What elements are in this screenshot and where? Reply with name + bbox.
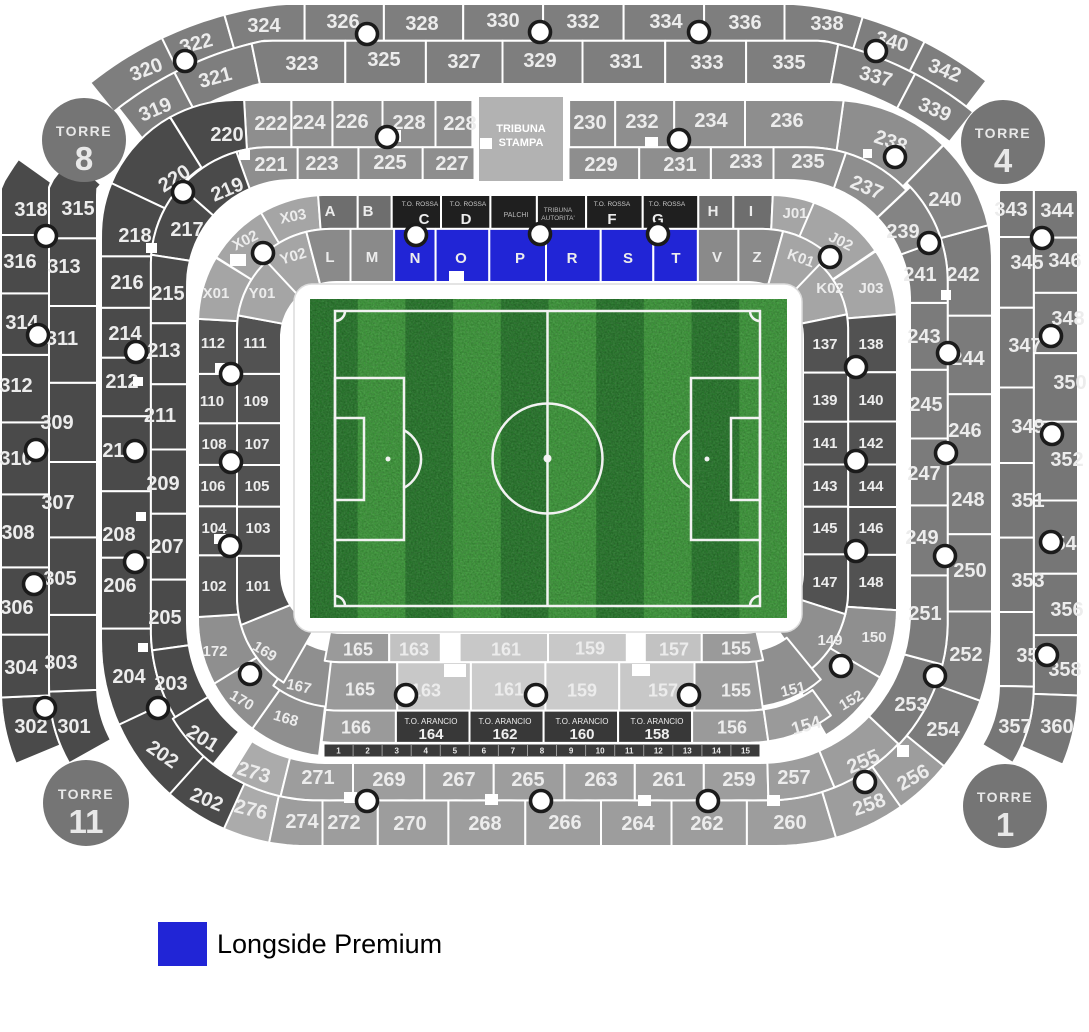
svg-text:X01: X01 (203, 285, 230, 302)
svg-text:239: 239 (886, 221, 919, 243)
svg-text:326: 326 (326, 11, 359, 33)
svg-text:166: 166 (341, 717, 371, 737)
svg-text:211: 211 (144, 405, 176, 427)
svg-text:148: 148 (858, 574, 883, 591)
svg-text:STAMPA: STAMPA (499, 137, 544, 149)
svg-text:8: 8 (540, 747, 545, 756)
svg-text:149: 149 (817, 632, 842, 649)
svg-text:331: 331 (609, 51, 642, 73)
svg-text:234: 234 (694, 110, 728, 132)
svg-text:215: 215 (151, 283, 184, 305)
svg-text:265: 265 (511, 769, 544, 791)
svg-text:163: 163 (399, 639, 429, 659)
svg-text:1: 1 (996, 806, 1014, 843)
svg-text:161: 161 (494, 679, 524, 699)
svg-text:164: 164 (418, 726, 444, 743)
svg-text:227: 227 (435, 153, 468, 175)
svg-text:5: 5 (453, 747, 458, 756)
svg-text:222: 222 (254, 113, 287, 135)
svg-text:142: 142 (858, 435, 883, 452)
svg-text:I: I (749, 203, 753, 220)
svg-text:272: 272 (327, 812, 360, 834)
svg-text:264: 264 (621, 813, 655, 835)
svg-text:11: 11 (69, 803, 104, 840)
svg-text:316: 316 (3, 251, 36, 273)
svg-text:Z: Z (752, 249, 761, 266)
svg-text:109: 109 (243, 393, 268, 410)
svg-text:101: 101 (245, 578, 270, 595)
svg-text:TORRE: TORRE (58, 786, 114, 802)
svg-text:307: 307 (41, 492, 74, 514)
svg-text:156: 156 (717, 717, 747, 737)
svg-text:11: 11 (625, 747, 634, 756)
svg-text:AUTORITA': AUTORITA' (541, 215, 575, 222)
svg-text:108: 108 (201, 436, 226, 453)
svg-text:160: 160 (569, 726, 594, 743)
svg-text:T: T (671, 250, 680, 267)
svg-text:349: 349 (1011, 416, 1044, 438)
svg-text:H: H (708, 203, 719, 220)
svg-text:311: 311 (46, 328, 78, 350)
svg-text:220: 220 (210, 124, 243, 146)
svg-text:203: 203 (154, 673, 187, 695)
svg-text:325: 325 (367, 49, 400, 71)
svg-text:250: 250 (953, 560, 986, 582)
svg-text:143: 143 (812, 478, 837, 495)
svg-text:231: 231 (663, 154, 696, 176)
svg-text:245: 245 (909, 394, 942, 416)
svg-text:K02: K02 (816, 280, 844, 297)
svg-text:330: 330 (486, 10, 519, 32)
svg-text:2: 2 (365, 747, 370, 756)
svg-text:158: 158 (644, 726, 669, 743)
svg-text:J01: J01 (782, 205, 807, 222)
svg-text:PALCHI: PALCHI (504, 212, 529, 219)
svg-text:267: 267 (442, 769, 475, 791)
svg-text:323: 323 (285, 53, 318, 75)
svg-text:305: 305 (43, 568, 76, 590)
svg-text:247: 247 (907, 463, 940, 485)
svg-text:246: 246 (948, 420, 981, 442)
svg-text:TRIBUNA: TRIBUNA (496, 123, 546, 135)
svg-text:335: 335 (772, 52, 805, 74)
svg-text:357: 357 (998, 716, 1031, 738)
svg-text:T.O. ROSSA: T.O. ROSSA (594, 201, 631, 208)
svg-text:223: 223 (305, 153, 338, 175)
svg-text:140: 140 (858, 392, 883, 409)
svg-text:306: 306 (0, 597, 33, 619)
svg-text:318: 318 (14, 199, 47, 221)
svg-text:261: 261 (652, 769, 685, 791)
svg-text:217: 217 (170, 219, 203, 241)
svg-text:221: 221 (254, 154, 287, 176)
svg-text:TORRE: TORRE (56, 123, 112, 139)
svg-text:360: 360 (1040, 716, 1073, 738)
svg-text:105: 105 (244, 478, 269, 495)
svg-text:T.O. ROSSA: T.O. ROSSA (649, 201, 686, 208)
svg-text:233: 233 (729, 151, 762, 173)
svg-text:L: L (325, 249, 334, 266)
svg-text:254: 254 (926, 719, 960, 741)
svg-text:155: 155 (721, 680, 751, 700)
svg-text:147: 147 (812, 574, 837, 591)
svg-text:270: 270 (393, 813, 426, 835)
svg-text:S: S (623, 250, 633, 267)
svg-text:T.O. ARANCIO: T.O. ARANCIO (631, 717, 684, 726)
svg-text:O: O (455, 250, 467, 267)
svg-text:240: 240 (928, 189, 961, 211)
svg-text:12: 12 (654, 747, 663, 756)
svg-text:259: 259 (722, 769, 755, 791)
svg-text:TORRE: TORRE (977, 789, 1033, 805)
svg-text:107: 107 (244, 436, 269, 453)
svg-text:103: 103 (245, 520, 270, 537)
svg-text:301: 301 (57, 716, 90, 738)
svg-text:6: 6 (482, 747, 487, 756)
svg-text:N: N (410, 250, 421, 267)
svg-text:327: 327 (447, 51, 480, 73)
svg-text:226: 226 (335, 111, 368, 133)
svg-text:150: 150 (861, 629, 886, 646)
svg-text:303: 303 (44, 652, 77, 674)
svg-text:157: 157 (659, 639, 689, 659)
svg-text:209: 209 (146, 473, 179, 495)
svg-text:14: 14 (712, 747, 721, 756)
svg-text:M: M (366, 249, 379, 266)
svg-text:248: 248 (951, 489, 984, 511)
svg-text:144: 144 (858, 478, 884, 495)
svg-text:R: R (567, 250, 578, 267)
svg-text:242: 242 (946, 264, 979, 286)
svg-text:15: 15 (741, 747, 750, 756)
svg-text:312: 312 (0, 375, 33, 397)
svg-text:T.O. ARANCIO: T.O. ARANCIO (556, 717, 609, 726)
svg-text:162: 162 (492, 726, 517, 743)
svg-text:334: 334 (649, 11, 683, 33)
svg-text:T.O. ARANCIO: T.O. ARANCIO (405, 717, 458, 726)
svg-text:329: 329 (523, 50, 556, 72)
svg-text:260: 260 (773, 812, 806, 834)
svg-text:T.O. ROSSA: T.O. ROSSA (402, 201, 439, 208)
svg-text:Y01: Y01 (249, 285, 276, 302)
svg-text:315: 315 (61, 198, 94, 220)
svg-text:4: 4 (423, 747, 428, 756)
svg-text:252: 252 (949, 644, 982, 666)
svg-text:350: 350 (1053, 372, 1086, 394)
svg-text:309: 309 (40, 412, 73, 434)
svg-text:13: 13 (683, 747, 692, 756)
svg-text:241: 241 (903, 264, 936, 286)
svg-text:274: 274 (285, 811, 319, 833)
svg-text:216: 216 (110, 272, 143, 294)
svg-text:268: 268 (468, 813, 501, 835)
svg-text:249: 249 (905, 527, 938, 549)
svg-text:338: 338 (810, 13, 843, 35)
svg-text:172: 172 (202, 643, 227, 660)
svg-text:346: 346 (1048, 250, 1081, 272)
svg-text:213: 213 (147, 340, 180, 362)
svg-text:159: 159 (567, 680, 597, 700)
svg-text:224: 224 (292, 112, 326, 134)
svg-text:206: 206 (103, 575, 136, 597)
svg-text:145: 145 (812, 520, 837, 537)
svg-text:251: 251 (908, 603, 941, 625)
svg-text:141: 141 (812, 435, 837, 452)
svg-text:P: P (515, 250, 525, 267)
svg-text:332: 332 (566, 11, 599, 33)
svg-text:3: 3 (394, 747, 399, 756)
svg-text:9: 9 (569, 747, 574, 756)
svg-text:Longside Premium: Longside Premium (217, 929, 442, 959)
svg-text:J03: J03 (858, 280, 883, 297)
svg-text:257: 257 (777, 767, 810, 789)
svg-text:155: 155 (721, 638, 751, 658)
svg-text:225: 225 (373, 152, 406, 174)
svg-text:106: 106 (200, 478, 225, 495)
svg-text:230: 230 (573, 112, 606, 134)
svg-text:102: 102 (201, 578, 226, 595)
svg-text:146: 146 (858, 520, 883, 537)
svg-text:263: 263 (584, 769, 617, 791)
svg-text:8: 8 (75, 140, 93, 177)
svg-text:161: 161 (491, 639, 521, 659)
svg-text:353: 353 (1011, 570, 1044, 592)
svg-text:351: 351 (1011, 490, 1044, 512)
svg-text:328: 328 (405, 13, 438, 35)
svg-text:B: B (363, 203, 374, 220)
svg-text:324: 324 (247, 15, 281, 37)
svg-text:352: 352 (1050, 449, 1083, 471)
svg-text:208: 208 (102, 524, 135, 546)
svg-text:207: 207 (150, 536, 183, 558)
svg-text:10: 10 (596, 747, 605, 756)
svg-text:266: 266 (548, 812, 581, 834)
svg-text:F: F (607, 211, 616, 228)
svg-text:165: 165 (345, 679, 375, 699)
svg-text:A: A (325, 203, 336, 220)
svg-text:139: 139 (812, 392, 837, 409)
svg-text:344: 344 (1040, 200, 1074, 222)
svg-text:205: 205 (148, 607, 181, 629)
svg-text:157: 157 (648, 680, 678, 700)
svg-text:4: 4 (994, 142, 1013, 179)
svg-text:110: 110 (200, 393, 224, 410)
svg-text:304: 304 (4, 657, 38, 679)
svg-text:336: 336 (728, 12, 761, 34)
svg-text:204: 204 (112, 666, 146, 688)
svg-text:111: 111 (243, 335, 266, 352)
svg-text:T.O. ROSSA: T.O. ROSSA (450, 201, 487, 208)
svg-text:243: 243 (907, 326, 940, 348)
svg-text:112: 112 (201, 335, 225, 352)
svg-text:159: 159 (575, 638, 605, 658)
svg-text:308: 308 (1, 522, 34, 544)
svg-text:V: V (712, 249, 722, 266)
svg-text:232: 232 (625, 111, 658, 133)
svg-text:165: 165 (343, 639, 373, 659)
svg-text:D: D (461, 211, 472, 228)
svg-text:1: 1 (336, 747, 341, 756)
svg-text:343: 343 (994, 199, 1027, 221)
svg-text:137: 137 (812, 336, 837, 353)
svg-text:345: 345 (1010, 252, 1043, 274)
svg-text:333: 333 (690, 52, 723, 74)
svg-text:236: 236 (770, 110, 803, 132)
svg-text:7: 7 (511, 747, 516, 756)
svg-text:313: 313 (47, 256, 80, 278)
svg-text:138: 138 (858, 336, 883, 353)
svg-text:269: 269 (372, 769, 405, 791)
svg-text:253: 253 (894, 694, 927, 716)
svg-text:T.O. ARANCIO: T.O. ARANCIO (479, 717, 532, 726)
svg-text:356: 356 (1050, 599, 1083, 621)
svg-text:228: 228 (443, 113, 476, 135)
svg-text:235: 235 (791, 151, 824, 173)
svg-text:TRIBUNA: TRIBUNA (544, 207, 573, 214)
svg-text:TORRE: TORRE (975, 125, 1031, 141)
svg-text:229: 229 (584, 154, 617, 176)
svg-text:347: 347 (1008, 335, 1041, 357)
svg-text:271: 271 (301, 767, 334, 789)
svg-text:262: 262 (690, 813, 723, 835)
